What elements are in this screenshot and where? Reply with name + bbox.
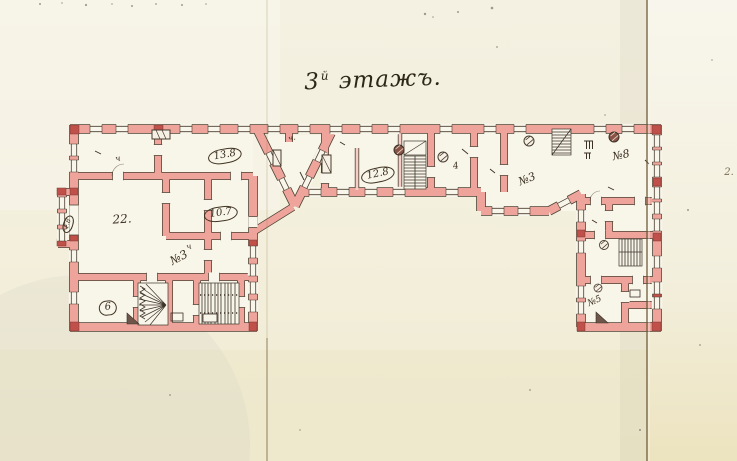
plan-title-word: этажъ. <box>338 65 442 95</box>
room-number-label: №8 <box>611 148 630 162</box>
plan-title-superscript: й <box>320 69 329 83</box>
plan-title-floor-number: 3 <box>304 69 321 96</box>
margin-note: 2. <box>724 168 734 178</box>
pencil-mark-label: 4 <box>452 162 459 172</box>
room-area-label: 22. <box>112 212 132 225</box>
winder-staircase-icon <box>138 283 168 325</box>
wing-staircase-icon <box>619 239 642 266</box>
scanned-floor-plan-page: 3йэтажъ. 13.8 12.8 10.7 22. №3 №3 №8 6 1… <box>0 0 737 461</box>
main-staircase-icon <box>404 141 426 189</box>
small-staircase-icon <box>552 129 571 155</box>
plan-title: 3йэтажъ. <box>304 65 442 96</box>
pencil-mark-label: ч. <box>288 133 297 142</box>
